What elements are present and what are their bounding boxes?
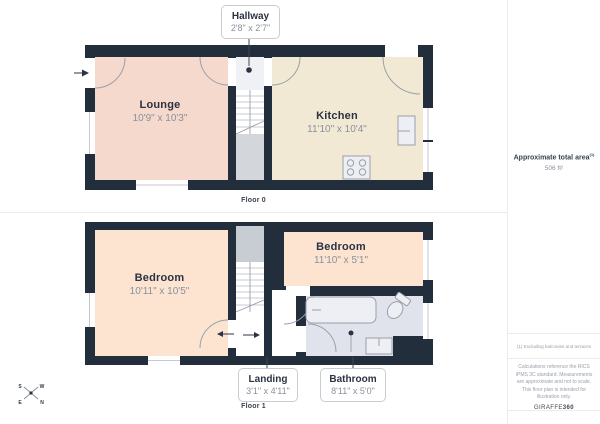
- bathroom-callout-dims: 8'11" x 5'0": [331, 386, 375, 396]
- kitchen-label: Kitchen 11'10" x 10'4": [287, 110, 387, 135]
- disclaimer-block: Calculations reference the RICS IPMS 3C …: [508, 359, 600, 411]
- bathroom-callout-name: Bathroom: [329, 374, 376, 385]
- kitchen-right-door-gap: [385, 45, 418, 57]
- bathtub-icon: [306, 297, 376, 323]
- bedroom-right-door-gap: [286, 286, 310, 296]
- lounge-label: Lounge 10'9" x 10'3": [110, 99, 210, 124]
- bathroom-door-gap: [296, 326, 306, 352]
- sink-icon: [366, 338, 392, 354]
- total-area-title-text: Approximate total area: [514, 154, 590, 161]
- bathroom-wall-block: [393, 336, 423, 356]
- counter-icon: [398, 116, 415, 145]
- floorplan-page: S W E N Hallway 2'8" x 2'7" Lounge 10'9"…: [0, 0, 600, 424]
- hallway-callout-name: Hallway: [232, 11, 269, 22]
- floor0-label: Floor 0: [0, 197, 507, 204]
- lounge-door-gap: [228, 58, 236, 86]
- bathroom-light-dot: [349, 331, 354, 336]
- staircase-floor0: [236, 90, 264, 180]
- footnote: (1) Excluding balconies and terraces: [508, 333, 600, 359]
- total-area-superscript: (1): [589, 152, 594, 157]
- total-area-value: 506 ft²: [508, 165, 600, 172]
- bedroom-right-label: Bedroom 11'10" x 5'1": [291, 241, 391, 266]
- logo-suffix: 360: [563, 405, 574, 411]
- kitchen-door-gap: [264, 58, 272, 86]
- landing-callout-name: Landing: [249, 374, 288, 385]
- total-area-block: Approximate total area(1) 506 ft²: [508, 152, 600, 172]
- giraffe360-logo: GIRAFFE360: [515, 405, 593, 411]
- landing-callout: Landing 3'1" x 4'11": [238, 368, 298, 402]
- bathroom-callout: Bathroom 8'11" x 5'0": [320, 368, 386, 402]
- total-area-title: Approximate total area(1): [508, 152, 600, 161]
- floor1-label: Floor 1: [0, 403, 507, 410]
- disclaimer-text: Calculations reference the RICS IPMS 3C …: [515, 364, 593, 402]
- compass-s: S: [18, 384, 22, 390]
- stove-icon: [343, 156, 370, 179]
- hallway-callout-dims: 2'8" x 2'7": [231, 23, 270, 33]
- logo-text: GIRAFFE: [534, 405, 563, 411]
- hallway-floor: [236, 57, 264, 90]
- hallway-light-dot: [246, 67, 252, 73]
- info-sidebar: Approximate total area(1) 506 ft² (1) Ex…: [507, 0, 600, 424]
- hallway-callout: Hallway 2'8" x 2'7": [221, 5, 280, 39]
- landing-callout-dims: 3'1" x 4'11": [246, 386, 290, 396]
- bedroom-left-label: Bedroom 10'11" x 10'5": [107, 272, 212, 297]
- compass-w: W: [40, 384, 45, 390]
